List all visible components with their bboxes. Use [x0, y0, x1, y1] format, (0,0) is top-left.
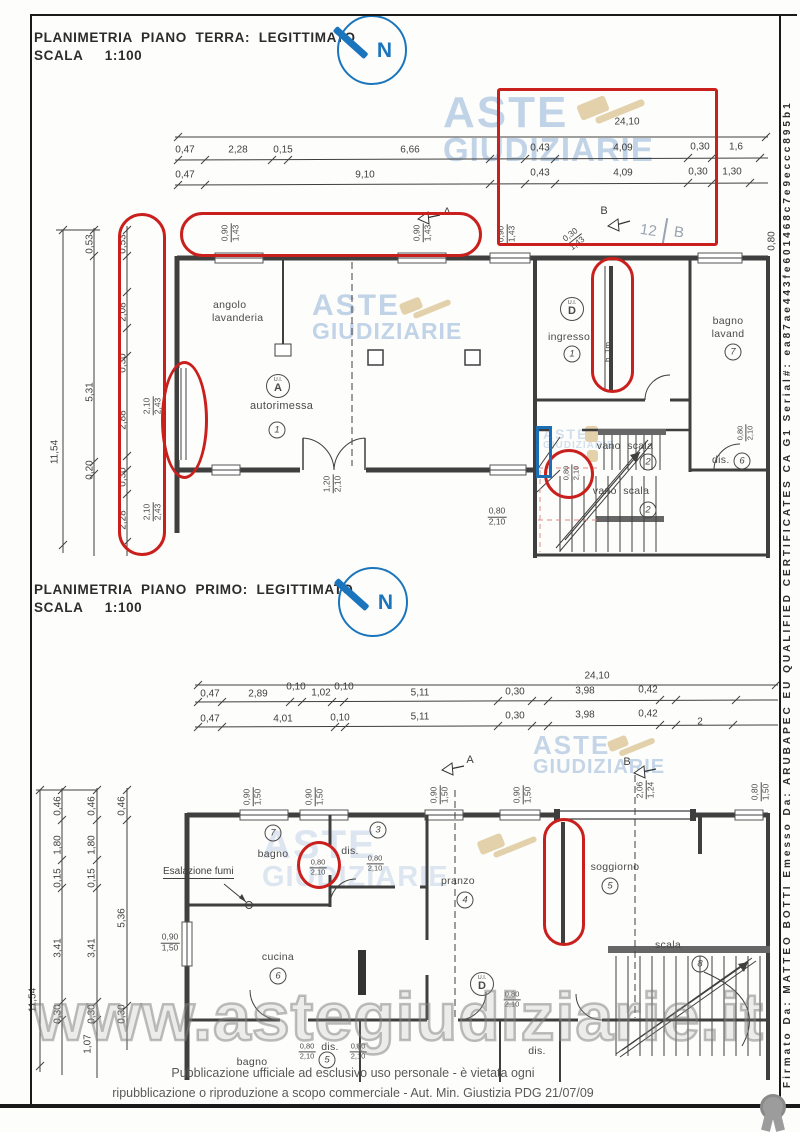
north-needle	[333, 26, 369, 59]
north-arrow-icon: N	[337, 15, 407, 85]
room-label-autorimessa: autorimessa	[250, 400, 313, 412]
room-number-badge: 3	[370, 822, 387, 839]
room-number-badge: 2	[640, 502, 657, 519]
dim-label: 1,30	[722, 166, 741, 177]
dim-denominator: 1,50	[161, 943, 180, 954]
dim-label: 5,11	[411, 711, 430, 722]
dim-label: 0,10	[286, 681, 305, 692]
footer-line-2: ripubblicazione o riproduzione a scopo c…	[0, 1086, 706, 1100]
door-dim: 0,802,10	[729, 425, 754, 442]
dim-denominator: 1,50	[253, 788, 264, 807]
digital-signature-text: Firmato Da: MATTEO BOTTI Emesso Da: ARUB…	[782, 48, 793, 1088]
section-letter-a: A	[466, 754, 473, 766]
room-label-bagno-lavand: bagno	[713, 316, 744, 328]
window-dim: 0,901,50	[424, 786, 451, 805]
dim-label: 3,98	[575, 709, 594, 720]
dim-numerator: 0,90	[243, 789, 253, 806]
dim-label: 0,20	[84, 460, 95, 479]
dim-denominator: 2,10	[333, 475, 344, 494]
room-label-soggiorno: soggiorno	[591, 862, 640, 874]
seal-rosette-icon	[758, 1094, 788, 1132]
room-label-vano-scala: vano scala	[597, 441, 653, 453]
dim-label: 0,46	[52, 796, 63, 815]
north-arrow-icon: N	[338, 567, 408, 637]
room-number: 6	[739, 456, 744, 467]
red-annotation-oval	[543, 818, 585, 946]
room-number: 7	[270, 828, 275, 839]
dim-numerator: 0,90	[305, 789, 315, 806]
dim-denominator: 1,50	[761, 783, 772, 802]
plan-primo-title: PLANIMETRIA PIANO PRIMO: LEGITTIMATO	[34, 582, 353, 597]
dim-label: 24,10	[584, 670, 609, 681]
dim-label: 0,46	[116, 796, 127, 815]
room-label-scala: scala	[655, 940, 681, 952]
dim-numerator: 2,06	[636, 782, 646, 799]
dim-label: 3,41	[52, 938, 63, 957]
red-annotation-circle	[297, 841, 341, 889]
dim-label: 0,15	[52, 868, 63, 887]
room-number: 1	[274, 425, 279, 436]
room-number-badge: 4	[457, 892, 474, 909]
room-number: 1	[569, 349, 574, 360]
dim-label: 0,30	[505, 710, 524, 721]
room-label-vano-scala: vano scala	[593, 486, 649, 498]
room-number: 7	[730, 347, 735, 358]
room-number: 8	[697, 959, 702, 970]
dim-numerator: 0,80	[736, 426, 745, 441]
scanned-floorplan-sheet: ASTEGIUDIZIARIE ASTEGIUDIZIARIE ASTEGIUD…	[0, 0, 800, 1132]
dim-label: 1,80	[86, 835, 97, 854]
room-number: 4	[462, 895, 467, 906]
red-annotation-oval	[161, 361, 208, 479]
dim-label: 0,15	[86, 868, 97, 887]
dim-denominator: 1,50	[440, 786, 451, 805]
door-dim: 0,802,10	[367, 847, 384, 872]
room-number-badge: 7	[725, 344, 742, 361]
dim-label: 2,28	[228, 144, 247, 155]
dim-label: 1,6	[729, 141, 743, 152]
red-annotation-oval	[180, 212, 482, 257]
dim-label: 3,41	[86, 938, 97, 957]
dim-denominator: 1,50	[523, 786, 534, 805]
window-dim: 0,901,50	[507, 786, 534, 805]
dim-label: 0,80	[766, 231, 777, 250]
dim-label: 5,11	[411, 687, 430, 698]
dim-label: 5,31	[84, 382, 95, 401]
dim-label: 3,98	[575, 685, 594, 696]
blue-annotation-rect	[536, 426, 552, 478]
window-dim: 0,901,50	[237, 788, 264, 807]
window-dim: 0,901,50	[161, 927, 180, 954]
north-needle	[334, 578, 370, 611]
window-dim: 0,901,50	[299, 788, 326, 807]
red-annotation-oval	[591, 257, 634, 393]
room-label-pranzo: pranzo	[441, 876, 475, 888]
room-number: 2	[645, 505, 650, 516]
dim-numerator: 0,90	[430, 787, 440, 804]
esalazione-fumi-note: Esalazione fumi	[163, 866, 234, 879]
dim-denominator: 2,10	[367, 863, 384, 873]
sheet-frame-top	[30, 14, 797, 16]
room-number-badge: 1	[269, 422, 286, 439]
room-label-cucina: cucina	[262, 952, 294, 964]
dim-numerator: 0,80	[489, 507, 506, 517]
section-letter-b: B	[623, 756, 630, 768]
window-dim-wide: 2,061,24	[630, 781, 657, 800]
sheet-frame-bottom	[0, 1104, 800, 1108]
plan-primo-scale: SCALA 1:100	[34, 600, 142, 615]
room-label-bagno-lavand: lavand	[712, 329, 745, 341]
dim-label: 11,54	[49, 440, 60, 464]
dim-label: 1,02	[311, 687, 330, 698]
red-annotation-rect	[497, 88, 718, 246]
garage-door-dim: 1,202,10	[317, 475, 344, 494]
plan-terra-title: PLANIMETRIA PIANO TERRA: LEGITTIMATO	[34, 30, 356, 45]
room-number-badge: 5	[602, 878, 619, 895]
door-dim: 0,802,10	[488, 501, 507, 528]
room-label-angolo: angolo	[213, 300, 246, 312]
room-label-lavanderia: lavanderia	[212, 313, 263, 325]
sheet-frame-right	[779, 14, 781, 1106]
room-label-dis: dis.	[712, 455, 730, 467]
dim-label: 6,66	[400, 144, 419, 155]
room-number-badge: 2	[640, 454, 657, 471]
dim-numerator: 0,80	[751, 784, 761, 801]
room-label-dis: dis.	[341, 846, 359, 858]
dim-label: 0,47	[175, 144, 194, 155]
plan-terra-scale: SCALA 1:100	[34, 48, 142, 63]
dim-label: 0,46	[86, 796, 97, 815]
sheet-frame-left	[30, 14, 32, 1106]
unit-badge-d: U.I.D	[560, 297, 584, 321]
red-annotation-oval	[118, 213, 166, 556]
dim-label: 4,01	[273, 713, 292, 724]
room-number: 5	[324, 1055, 329, 1066]
room-number-badge: 1	[564, 346, 581, 363]
dim-label: 2,89	[248, 688, 267, 699]
room-number-badge: 6	[734, 453, 751, 470]
dim-label: 0,47	[200, 688, 219, 699]
dim-label: 0,10	[334, 681, 353, 692]
dim-label: 0,42	[638, 708, 657, 719]
dim-label: 2	[697, 716, 703, 727]
dim-label: 0,10	[330, 712, 349, 723]
room-number: 3	[375, 825, 380, 836]
dim-label: 0,53	[84, 234, 95, 253]
room-number: 5	[607, 881, 612, 892]
dim-label: 0,47	[175, 169, 194, 180]
room-number-badge: 7	[265, 825, 282, 842]
room-number-badge: 8	[692, 956, 709, 973]
dim-label: 0,42	[638, 684, 657, 695]
dim-numerator: 1,20	[323, 476, 333, 493]
dim-label: 0,30	[505, 686, 524, 697]
north-letter: N	[377, 39, 392, 63]
dim-label: 1,80	[52, 835, 63, 854]
dim-denominator: 2,10	[745, 425, 755, 442]
dim-label: 9,10	[355, 169, 374, 180]
dim-denominator: 1,24	[646, 781, 657, 800]
dim-label: 5,36	[116, 908, 127, 927]
dim-label: 0,15	[273, 144, 292, 155]
dim-label: 0,47	[200, 713, 219, 724]
footer-line-1: Pubblicazione ufficiale ad esclusivo uso…	[0, 1066, 706, 1080]
unit-badge-a: U.I.A	[266, 374, 290, 398]
room-label-ingresso: ingresso	[548, 332, 590, 344]
dim-numerator: 0,90	[513, 787, 523, 804]
dim-denominator: 2,10	[488, 517, 507, 528]
dim-numerator: 0,80	[368, 854, 383, 863]
unit-letter: D	[568, 306, 576, 317]
unit-letter: A	[274, 383, 282, 394]
north-letter: N	[378, 591, 393, 615]
dim-numerator: 0,90	[162, 933, 179, 943]
dim-denominator: 1,50	[315, 788, 326, 807]
window-dim: 0,801,50	[745, 783, 772, 802]
astegiudiziarie-url-watermark: www.astegiudiziarie.it	[34, 978, 764, 1056]
room-number: 2	[645, 457, 650, 468]
room-label-bagno: bagno	[258, 849, 289, 861]
